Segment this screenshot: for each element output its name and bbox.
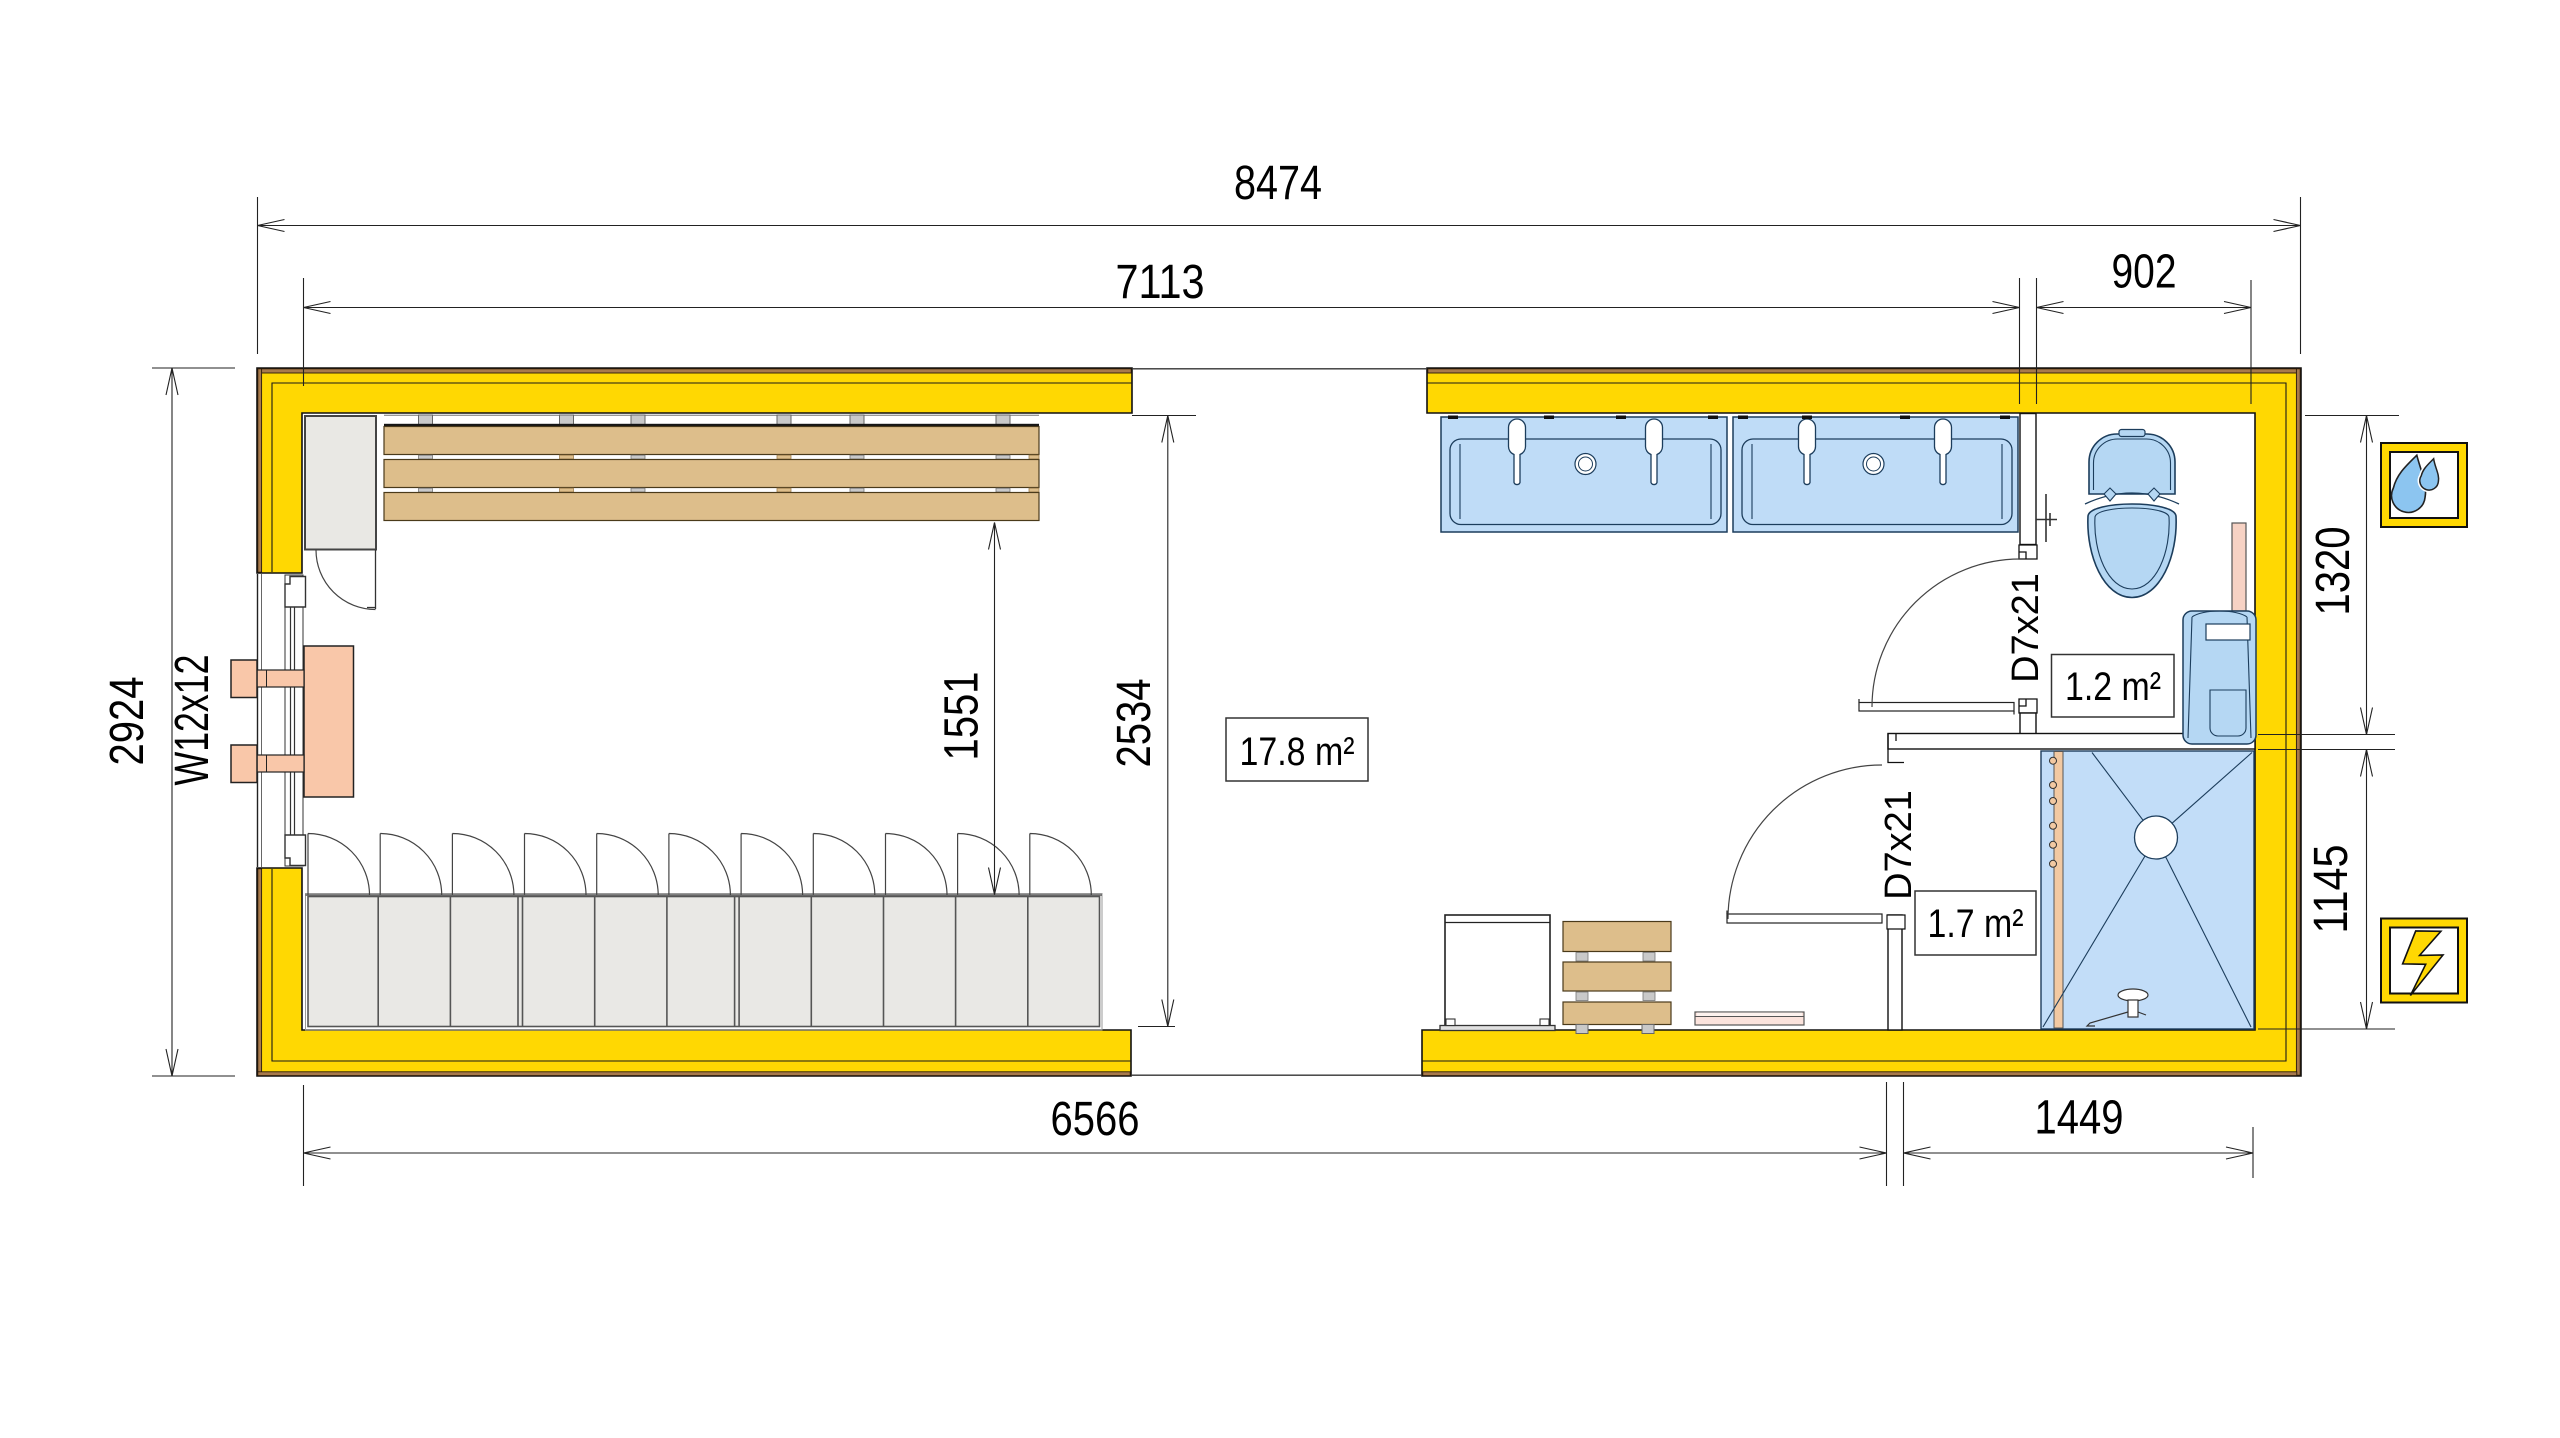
svg-text:1320: 1320: [2307, 527, 2360, 616]
svg-text:6566: 6566: [1051, 1093, 1140, 1146]
svg-text:W12x12: W12x12: [166, 655, 219, 786]
svg-text:1551: 1551: [936, 672, 989, 761]
svg-text:1.7 m²: 1.7 m²: [1928, 902, 2024, 946]
svg-text:8474: 8474: [1234, 157, 1322, 210]
svg-text:1449: 1449: [2035, 1092, 2124, 1145]
svg-text:7113: 7113: [1116, 256, 1205, 309]
svg-text:D7x21: D7x21: [2005, 573, 2047, 683]
svg-text:2924: 2924: [101, 677, 154, 766]
svg-text:1.2 m²: 1.2 m²: [2065, 665, 2161, 709]
svg-text:D7x21: D7x21: [1878, 790, 1920, 900]
svg-text:1145: 1145: [2305, 845, 2358, 934]
svg-text:17.8 m²: 17.8 m²: [1240, 730, 1355, 774]
svg-text:902: 902: [2112, 246, 2177, 299]
svg-text:2534: 2534: [1108, 679, 1161, 768]
